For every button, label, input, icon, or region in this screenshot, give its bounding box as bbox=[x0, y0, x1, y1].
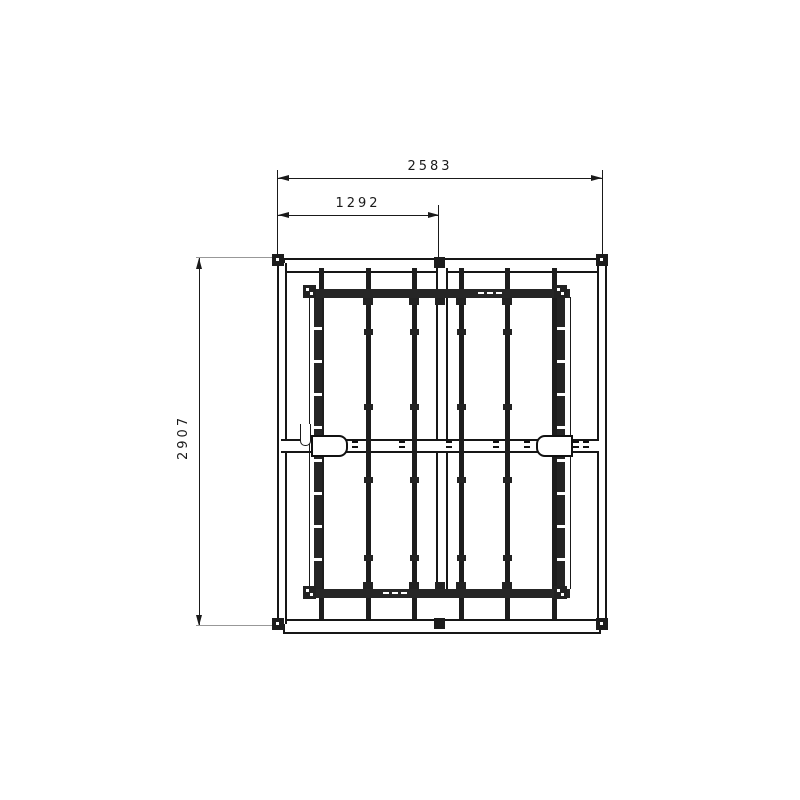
corner-hole bbox=[276, 622, 279, 625]
inner-fitting-bottom-left bbox=[303, 586, 316, 599]
clamp bbox=[457, 404, 466, 410]
dimension-height-label: 2907 bbox=[176, 391, 194, 483]
fitting-hole bbox=[561, 593, 564, 596]
clamp bbox=[410, 404, 419, 410]
dimension-line bbox=[277, 178, 603, 179]
corner-hole bbox=[600, 622, 603, 625]
dash-mark bbox=[352, 446, 358, 448]
bar-foot bbox=[409, 582, 419, 589]
crossbar-slot bbox=[401, 592, 407, 594]
dimension-line bbox=[277, 215, 439, 216]
inner-fitting-top-right bbox=[554, 285, 567, 298]
dimension-line bbox=[199, 258, 200, 626]
inner-top-crossbar bbox=[308, 289, 570, 298]
fitting-hole bbox=[306, 589, 309, 592]
arrowhead-left-icon bbox=[278, 212, 289, 218]
fitting-hole bbox=[557, 288, 560, 291]
corner-hole bbox=[276, 258, 279, 261]
clamp bbox=[364, 555, 373, 561]
right-collar-fitting bbox=[536, 435, 573, 457]
clamp bbox=[364, 477, 373, 483]
clamp bbox=[364, 404, 373, 410]
cad-drawing-canvas: 2583 1292 2907 bbox=[0, 0, 800, 800]
dash-mark bbox=[446, 441, 452, 443]
inner-fitting-bottom-right bbox=[554, 586, 567, 599]
bar-foot bbox=[435, 582, 445, 589]
corner-fitting-bottom-right bbox=[596, 618, 608, 630]
corner-fitting-bottom-left bbox=[272, 618, 284, 630]
clamp bbox=[503, 477, 512, 483]
dash-mark bbox=[352, 441, 358, 443]
bar-foot bbox=[435, 298, 445, 305]
left-member-hook bbox=[300, 424, 311, 446]
bottom-rail-center-connector bbox=[434, 618, 445, 629]
extension-line-right bbox=[602, 170, 603, 254]
bar-foot bbox=[456, 298, 466, 305]
fitting-hole bbox=[557, 589, 560, 592]
corner-hole bbox=[600, 258, 603, 261]
dash-mark bbox=[573, 441, 579, 443]
clamp bbox=[364, 329, 373, 335]
bar-foot bbox=[456, 582, 466, 589]
vertical-bar bbox=[412, 268, 417, 619]
dash-mark bbox=[524, 446, 530, 448]
crossbar-slot bbox=[496, 292, 502, 294]
dash-mark bbox=[583, 446, 589, 448]
vertical-bar bbox=[505, 268, 510, 619]
corner-fitting-top-right bbox=[596, 254, 608, 266]
left-collar-fitting bbox=[311, 435, 348, 457]
bar-foot bbox=[502, 582, 512, 589]
dash-mark bbox=[583, 441, 589, 443]
clamp bbox=[457, 477, 466, 483]
dimension-width-total-label: 2583 bbox=[380, 159, 480, 174]
dash-mark bbox=[493, 446, 499, 448]
clamp bbox=[503, 329, 512, 335]
inner-bottom-crossbar bbox=[308, 589, 570, 598]
bar-foot bbox=[363, 582, 373, 589]
fitting-hole bbox=[310, 292, 313, 295]
bar-foot bbox=[409, 298, 419, 305]
center-slat bbox=[436, 268, 448, 589]
dash-mark bbox=[399, 441, 405, 443]
arrowhead-right-icon bbox=[591, 175, 602, 181]
clamp bbox=[457, 555, 466, 561]
clamp bbox=[410, 477, 419, 483]
dash-mark bbox=[399, 446, 405, 448]
fitting-hole bbox=[561, 292, 564, 295]
fitting-hole bbox=[306, 288, 309, 291]
dash-mark bbox=[446, 446, 452, 448]
clamp bbox=[410, 555, 419, 561]
dash-mark bbox=[493, 441, 499, 443]
crossbar-slot bbox=[478, 292, 484, 294]
extension-line-center bbox=[438, 205, 439, 258]
corner-fitting-top-left bbox=[272, 254, 284, 266]
crossbar-slot bbox=[383, 592, 389, 594]
crossbar-slot bbox=[392, 592, 398, 594]
clamp bbox=[457, 329, 466, 335]
arrowhead-up-icon bbox=[196, 258, 202, 269]
fitting-hole bbox=[310, 593, 313, 596]
extension-line-top bbox=[196, 257, 277, 258]
dash-mark bbox=[524, 441, 530, 443]
vertical-bar bbox=[366, 268, 371, 619]
bar-foot bbox=[502, 298, 512, 305]
clamp bbox=[410, 329, 419, 335]
clamp bbox=[503, 404, 512, 410]
extension-line-bottom bbox=[196, 625, 277, 626]
dimension-width-center-label: 1292 bbox=[308, 196, 408, 211]
dash-mark bbox=[573, 446, 579, 448]
bar-foot bbox=[363, 298, 373, 305]
arrowhead-left-icon bbox=[278, 175, 289, 181]
top-rail-center-connector bbox=[434, 257, 445, 268]
vertical-bar bbox=[459, 268, 464, 619]
inner-fitting-top-left bbox=[303, 285, 316, 298]
crossbar-slot bbox=[487, 292, 493, 294]
clamp bbox=[503, 555, 512, 561]
